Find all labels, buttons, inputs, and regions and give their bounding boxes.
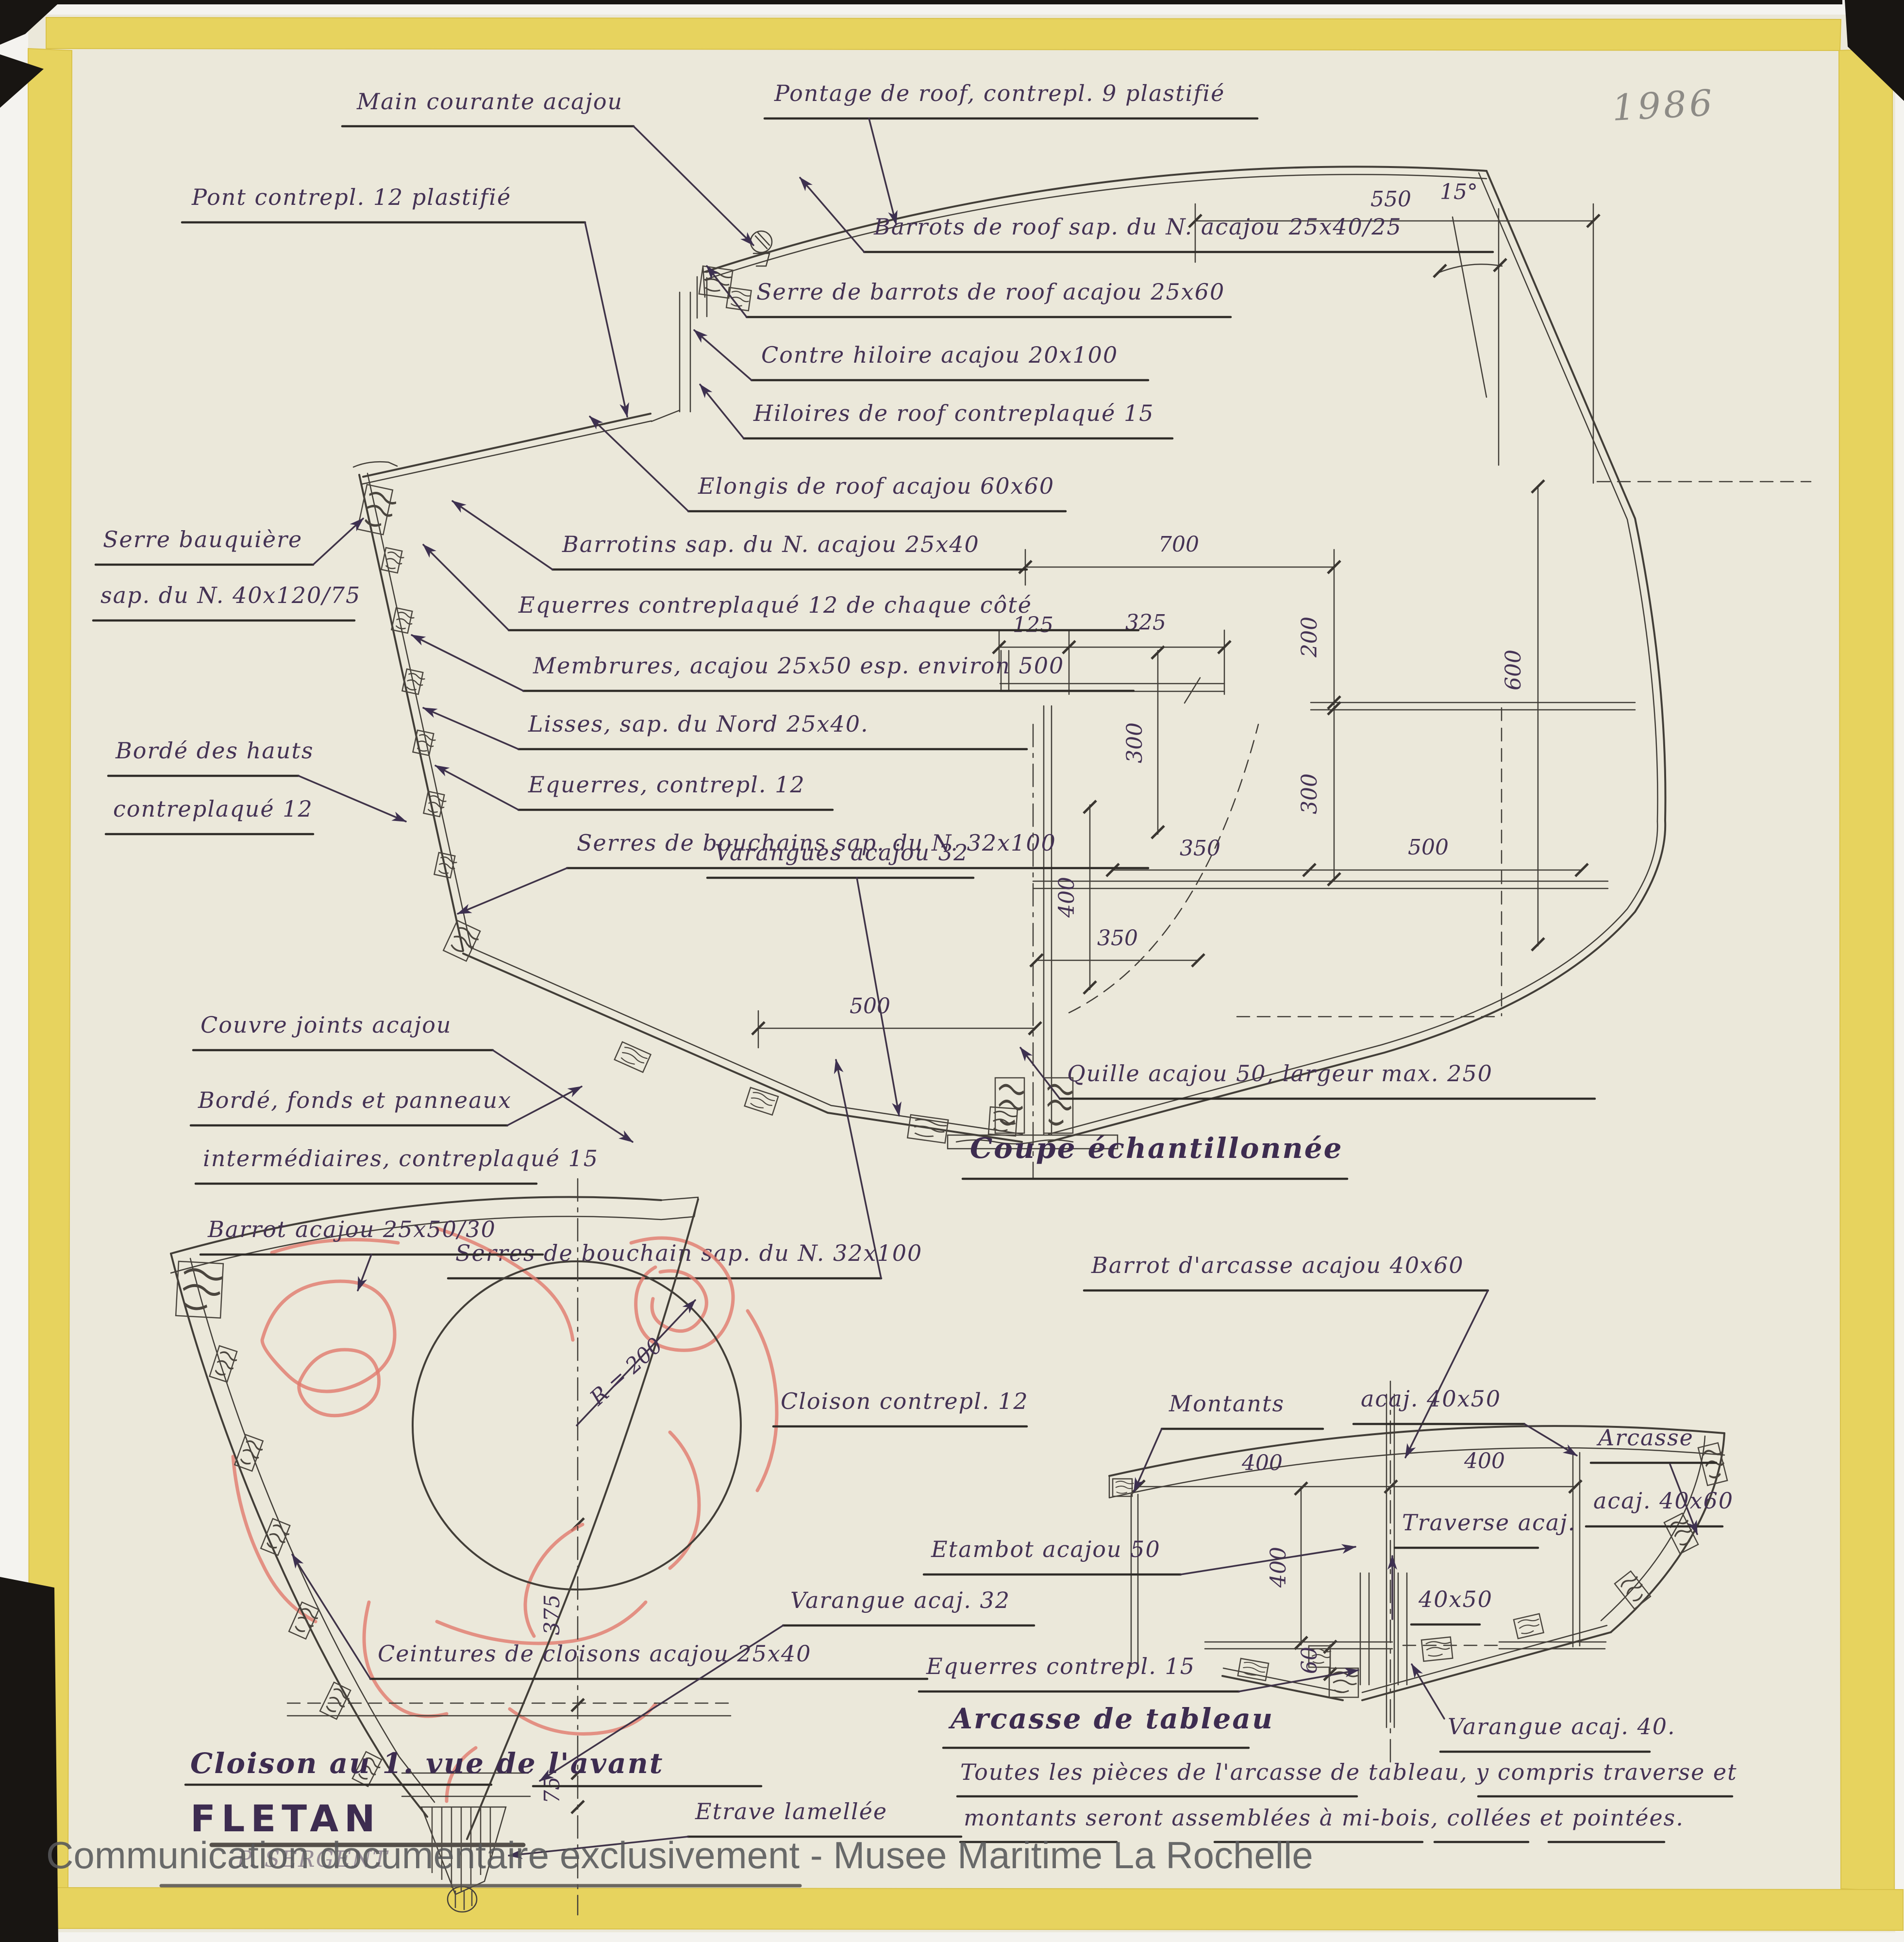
label-varangue-40: Varangue acaj. 40. [1448, 1713, 1676, 1740]
tape-right [1839, 49, 1894, 1892]
label-serre-barrots: Serre de barrots de roof acajou 25x60 [756, 279, 1225, 305]
label-montants-section: acaj. 40x50 [1361, 1386, 1501, 1412]
label-main-courante: Main courante acajou [356, 88, 623, 115]
note-line-1: Toutes les pièces de l'arcasse de tablea… [960, 1759, 1737, 1785]
label-etrave: Etrave lamellée [695, 1798, 887, 1825]
dim-400-arcasse-vertical: 400 [1266, 1547, 1291, 1588]
label-pontage: Pontage de roof, contrepl. 9 plastifié [774, 80, 1225, 106]
dim-75: 75 [540, 1776, 565, 1804]
label-ceintures: Ceintures de cloisons acajou 25x40 [378, 1641, 811, 1667]
label-barrotins: Barrotins sap. du N. acajou 25x40 [562, 531, 980, 557]
dim-375: 375 [540, 1594, 565, 1635]
label-barrots-roof: Barrots de roof sap. du N. acajou 25x40/… [873, 214, 1402, 240]
label-barrot-arcasse: Barrot d'arcasse acajou 40x60 [1091, 1252, 1464, 1278]
label-barrot-cloison: Barrot acajou 25x50/30 [207, 1216, 496, 1242]
label-serre-bauquiere-2: sap. du N. 40x120/75 [100, 582, 361, 608]
dim-300-right: 300 [1297, 773, 1322, 814]
label-hiloires: Hiloires de roof contreplaqué 15 [753, 400, 1154, 426]
label-varangues: Varangues acajou 32 [715, 839, 969, 866]
dim-400-arcasse-left: 400 [1241, 1451, 1283, 1475]
label-cloison-contrepl: Cloison contrepl. 12 [781, 1388, 1029, 1414]
dim-700: 700 [1158, 532, 1199, 557]
label-pont: Pont contrepl. 12 plastifié [191, 184, 511, 210]
dim-325: 325 [1125, 610, 1166, 635]
dim-angle-15: 15° [1440, 180, 1478, 204]
dim-600: 600 [1501, 650, 1526, 690]
dim-350-low: 350 [1097, 926, 1138, 951]
dim-60-arcasse: 60 [1297, 1647, 1322, 1674]
label-membrures: Membrures, acajou 25x50 esp. environ 500 [533, 653, 1064, 679]
label-lisses: Lisses, sap. du Nord 25x40. [528, 711, 869, 737]
dim-500-mid: 500 [1408, 835, 1449, 860]
watermark-text: Communication documentaire exclusivement… [46, 1834, 1313, 1876]
note-line-2: montants seront assemblées à mi-bois, co… [964, 1805, 1684, 1831]
tape-top [46, 17, 1841, 50]
dim-550: 550 [1370, 187, 1411, 212]
label-equerres-12: Equerres, contrepl. 12 [528, 771, 805, 798]
label-arcasse-2: acaj. 40x60 [1593, 1488, 1734, 1514]
tape-bottom [46, 1888, 1903, 1930]
label-serre-bauquiere-1: Serre bauquière [103, 526, 302, 552]
label-traverse-1: Traverse acaj. [1402, 1509, 1576, 1536]
label-borde-fonds-1: Bordé, fonds et panneaux [198, 1087, 512, 1113]
dim-300-left: 300 [1122, 722, 1147, 763]
label-elongis: Elongis de roof acajou 60x60 [698, 473, 1054, 499]
label-borde-hauts-1: Bordé des hauts [115, 737, 314, 764]
label-arcasse-1: Arcasse [1596, 1424, 1694, 1451]
title-arcasse: Arcasse de tableau [948, 1702, 1274, 1735]
label-etambot: Etambot acajou 50 [931, 1536, 1161, 1562]
dim-200: 200 [1297, 617, 1322, 658]
pencil-year-note: 1986 [1611, 82, 1716, 129]
dim-350-mid: 350 [1180, 836, 1220, 861]
label-couvre-joints: Couvre joints acajou [200, 1012, 452, 1038]
dim-400-keel: 400 [1054, 877, 1079, 918]
label-varangue-32: Varangue acaj. 32 [790, 1587, 1010, 1613]
title-cloison: Cloison au 1. vue de l'avant [190, 1747, 664, 1780]
label-montants: Montants [1169, 1390, 1285, 1417]
label-equerres-cote: Equerres contreplaqué 12 de chaque côté [518, 592, 1032, 618]
title-coupe: Coupe échantillonnée [970, 1132, 1343, 1165]
label-borde-fonds-2: intermédiaires, contreplaqué 15 [203, 1145, 599, 1172]
label-contre-hiloire: Contre hiloire acajou 20x100 [761, 342, 1118, 368]
label-borde-hauts-2: contreplaqué 12 [113, 796, 313, 822]
dim-400-arcasse-right: 400 [1464, 1449, 1505, 1473]
scanned-plan-page: 550 700 125 325 200 600 300 300 400 350 … [0, 0, 1904, 1942]
dim-500-low: 500 [850, 994, 890, 1019]
label-traverse-2: 40x50 [1418, 1586, 1493, 1612]
label-quille: Quille acajou 50, largeur max. 250 [1067, 1060, 1493, 1087]
label-equerres-15: Equerres contrepl. 15 [926, 1653, 1195, 1679]
